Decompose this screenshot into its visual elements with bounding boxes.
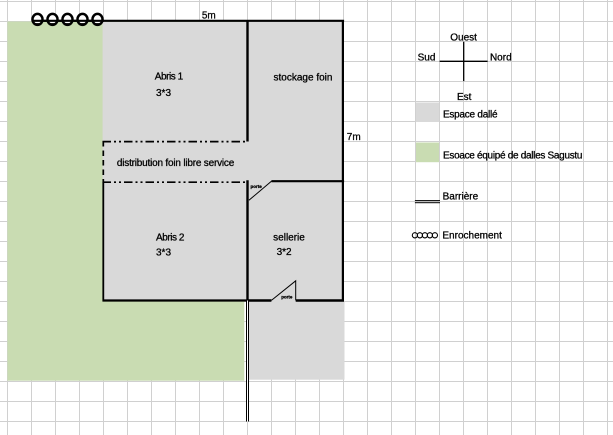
svg-text:5m: 5m bbox=[202, 10, 216, 21]
svg-text:porte: porte bbox=[251, 184, 263, 189]
svg-text:Espace dallé: Espace dallé bbox=[443, 110, 498, 121]
svg-text:Abris 2: Abris 2 bbox=[156, 233, 185, 244]
svg-text:7m: 7m bbox=[347, 132, 361, 143]
svg-text:sellerie: sellerie bbox=[273, 232, 305, 243]
svg-text:stockage foin: stockage foin bbox=[274, 72, 333, 83]
svg-text:Barrière: Barrière bbox=[443, 192, 479, 203]
svg-text:Est: Est bbox=[457, 92, 472, 103]
svg-text:3*3: 3*3 bbox=[156, 248, 171, 259]
svg-text:3*2: 3*2 bbox=[277, 247, 292, 258]
svg-text:porte: porte bbox=[281, 294, 293, 299]
svg-text:Ouest: Ouest bbox=[450, 32, 477, 43]
svg-text:Esoace équipé de dalles Sagust: Esoace équipé de dalles Sagustu bbox=[443, 151, 582, 162]
svg-text:Abris 1: Abris 1 bbox=[155, 72, 184, 83]
svg-text:Enrochement: Enrochement bbox=[442, 230, 502, 241]
svg-text:distribution foin libre servic: distribution foin libre service bbox=[117, 158, 235, 169]
svg-text:Sud: Sud bbox=[418, 52, 436, 63]
svg-text:Nord: Nord bbox=[490, 52, 512, 63]
svg-text:3*3: 3*3 bbox=[156, 88, 171, 99]
